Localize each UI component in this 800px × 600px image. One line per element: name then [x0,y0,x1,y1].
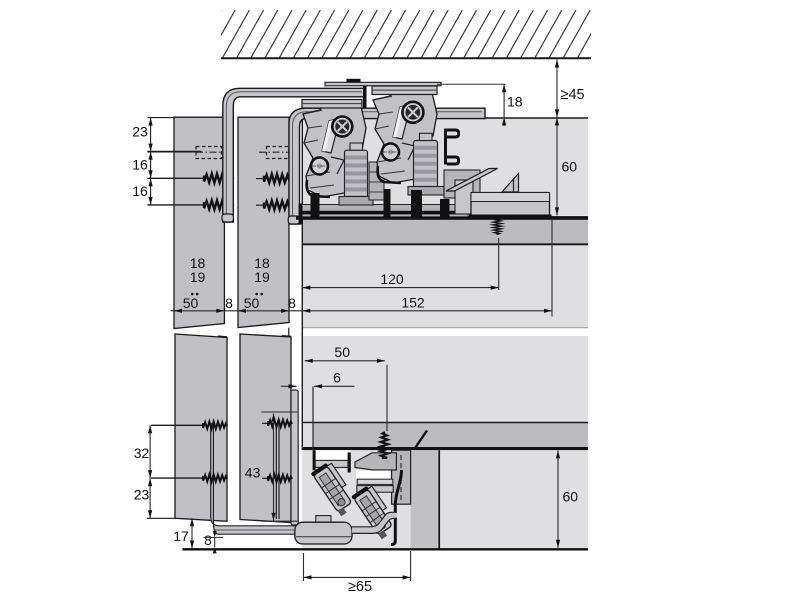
svg-text:17: 17 [173,528,189,544]
svg-text:≥45: ≥45 [561,87,585,103]
svg-text:50: 50 [183,295,199,311]
svg-text:120: 120 [380,271,404,287]
svg-text:8: 8 [204,532,212,548]
svg-text:23: 23 [132,124,148,140]
svg-text:8: 8 [225,295,233,311]
svg-text:19: 19 [190,269,206,285]
svg-text:18: 18 [507,94,523,110]
svg-text:32: 32 [134,445,150,461]
svg-text:152: 152 [401,294,425,310]
svg-text:23: 23 [134,487,150,503]
svg-text:43: 43 [245,465,261,481]
svg-text:≥65: ≥65 [348,579,372,595]
svg-text:16: 16 [132,183,148,199]
svg-text:8: 8 [288,295,296,311]
svg-text:16: 16 [132,157,148,173]
svg-text:6: 6 [333,370,341,386]
svg-text:60: 60 [563,489,579,505]
svg-text:50: 50 [244,295,260,311]
svg-text:19: 19 [254,269,270,285]
svg-text:60: 60 [562,159,578,175]
svg-text:50: 50 [334,344,350,360]
